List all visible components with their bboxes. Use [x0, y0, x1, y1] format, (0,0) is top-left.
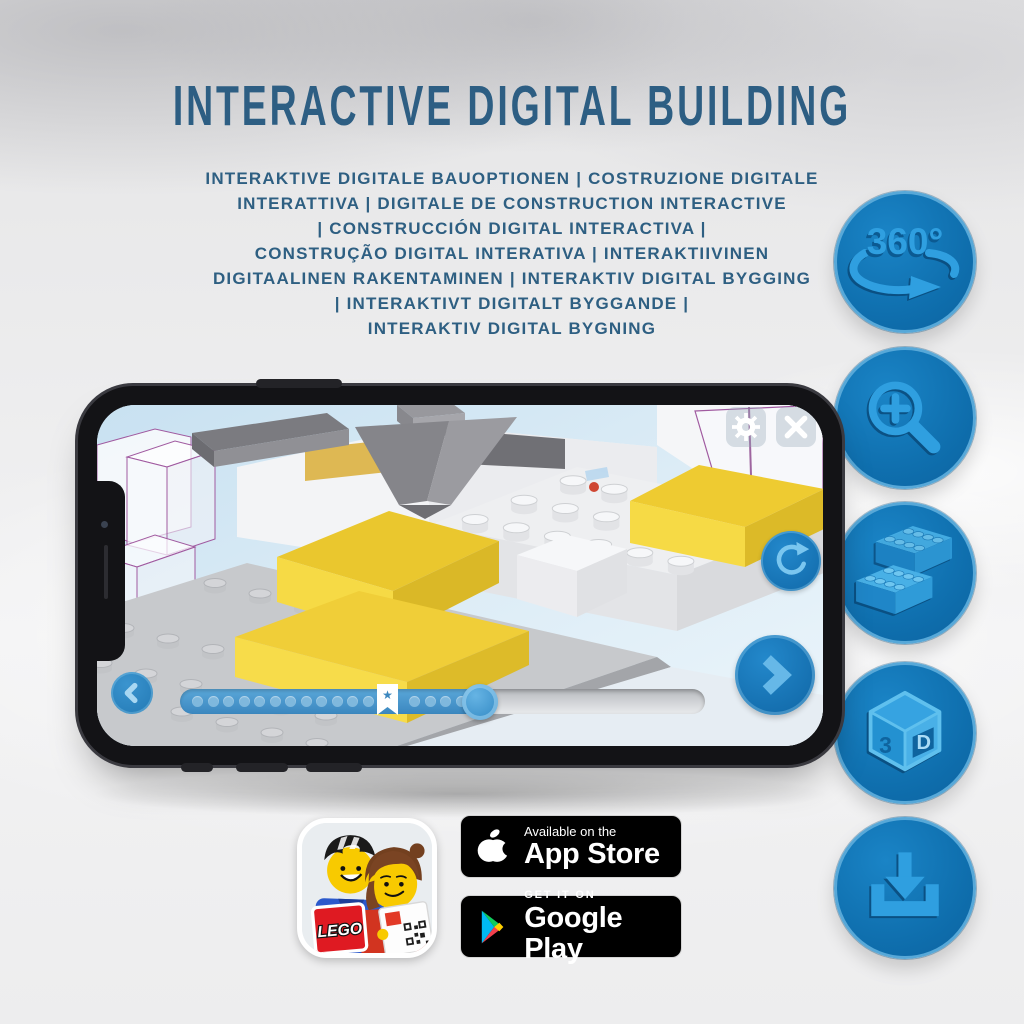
magnifier-plus-icon	[861, 374, 949, 462]
phone: ★	[75, 383, 845, 768]
progress-dot	[239, 696, 250, 707]
cube-d-label: D	[916, 732, 931, 754]
feature-zoom	[834, 347, 976, 489]
feature-3d-view: 3 D	[834, 662, 976, 804]
progress-dot	[270, 696, 281, 707]
progress-dot	[409, 696, 420, 707]
lego-bricks-icon	[854, 526, 956, 620]
phone-volume-up-button	[236, 763, 288, 772]
feature-360-rotation: 360°	[834, 191, 976, 333]
chevron-left-icon	[121, 682, 143, 704]
subtitle-line: INTERAKTIVE DIGITALE BAUOPTIONEN | COSTR…	[0, 166, 1024, 191]
close-button[interactable]	[776, 407, 816, 447]
rotate-model-button[interactable]	[761, 531, 821, 591]
progress-fill	[180, 689, 490, 714]
lego-app-icon[interactable]: LEGO	[297, 818, 437, 958]
app-store-name: App Store	[524, 839, 660, 870]
google-play-icon	[475, 906, 511, 948]
phone-power-button	[256, 379, 342, 388]
chevron-right-icon	[753, 653, 797, 697]
phone-screen: ★	[97, 405, 823, 746]
feature-bricks	[834, 502, 976, 644]
360-label: 360°	[849, 221, 961, 263]
google-play-tagline: GET IT ON	[524, 888, 681, 903]
page-title: INTERACTIVE DIGITAL BUILDING	[143, 74, 880, 139]
google-play-badge[interactable]: GET IT ON Google Play	[460, 895, 682, 958]
cube-3-label: 3	[879, 732, 892, 758]
progress-dot	[223, 696, 234, 707]
phone-mute-switch	[181, 763, 213, 772]
progress-dot	[440, 696, 451, 707]
app-store-tagline: Available on the	[524, 824, 660, 839]
settings-button[interactable]	[726, 407, 766, 447]
camera-dot	[101, 521, 108, 528]
progress-dot	[425, 696, 436, 707]
feature-download	[834, 817, 976, 959]
progress-dot	[363, 696, 374, 707]
poster: INTERACTIVE DIGITAL BUILDING INTERAKTIVE…	[0, 0, 1024, 1024]
phone-shadow	[92, 770, 828, 818]
gear-icon	[732, 413, 760, 441]
next-step-button[interactable]	[735, 635, 815, 715]
rotate-icon	[771, 541, 811, 581]
phone-notch	[94, 481, 125, 661]
lego-app-art: LEGO	[302, 823, 432, 953]
progress-dot	[285, 696, 296, 707]
download-icon	[860, 850, 950, 926]
progress-dot	[301, 696, 312, 707]
progress-dot	[192, 696, 203, 707]
speaker-slot	[104, 545, 108, 599]
3d-cube-icon: 3 D	[859, 689, 951, 777]
google-play-name: Google Play	[524, 903, 681, 965]
progress-dot	[316, 696, 327, 707]
previous-step-button[interactable]	[111, 672, 153, 714]
progress-handle[interactable]	[462, 684, 498, 720]
phone-volume-down-button	[306, 763, 362, 772]
app-store-badge[interactable]: Available on the App Store	[460, 815, 682, 878]
progress-dot	[332, 696, 343, 707]
apple-icon	[475, 825, 511, 869]
progress-dot	[254, 696, 265, 707]
progress-dot	[208, 696, 219, 707]
close-icon	[783, 414, 809, 440]
progress-dot	[347, 696, 358, 707]
